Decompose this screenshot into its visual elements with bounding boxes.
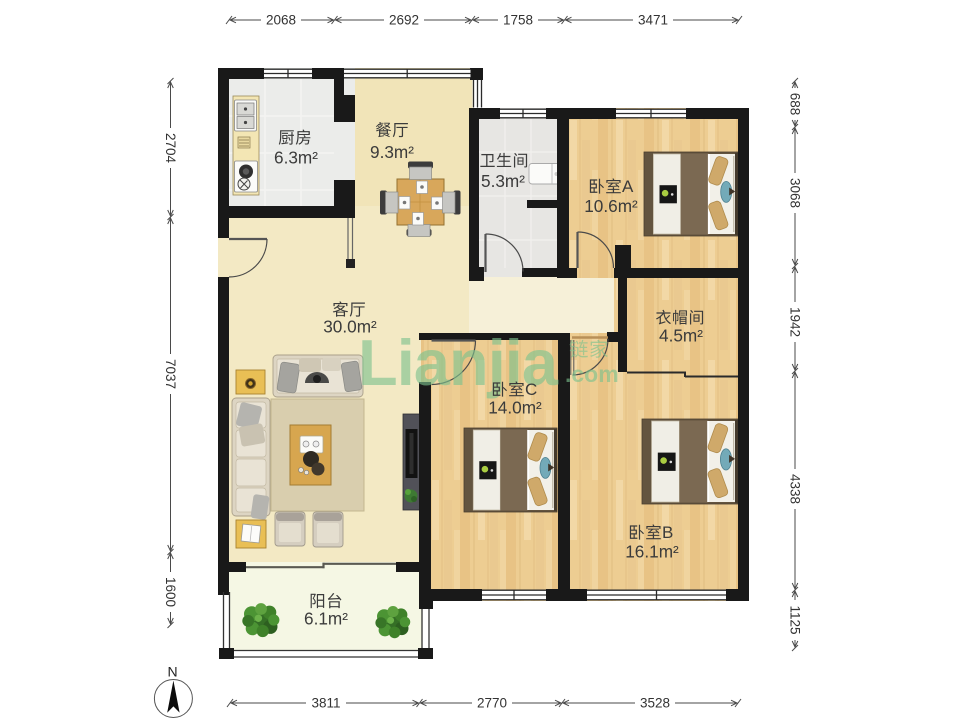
svg-text:N: N — [167, 664, 177, 680]
svg-text:3068: 3068 — [788, 178, 803, 208]
svg-text:2692: 2692 — [389, 13, 419, 28]
svg-text:14.0m²: 14.0m² — [488, 398, 542, 418]
svg-text:2770: 2770 — [477, 696, 507, 711]
svg-text:688: 688 — [788, 93, 803, 116]
svg-text:9.3m²: 9.3m² — [370, 142, 414, 162]
svg-text:3528: 3528 — [640, 696, 670, 711]
svg-text:16.1m²: 16.1m² — [625, 542, 679, 562]
svg-text:B: B — [662, 523, 673, 542]
svg-text:30.0m²: 30.0m² — [323, 317, 377, 337]
svg-text:3471: 3471 — [638, 13, 668, 28]
svg-text:1125: 1125 — [788, 605, 803, 634]
svg-text:1942: 1942 — [788, 307, 803, 337]
svg-text:2704: 2704 — [163, 133, 178, 164]
svg-text:C: C — [525, 380, 537, 399]
svg-text:5.3m²: 5.3m² — [481, 171, 525, 191]
svg-text:6.3m²: 6.3m² — [274, 148, 318, 168]
svg-text:.com: .com — [565, 361, 619, 387]
svg-text:A: A — [622, 177, 634, 196]
svg-text:3811: 3811 — [311, 696, 340, 711]
svg-text:10.6m²: 10.6m² — [584, 196, 638, 216]
svg-text:7037: 7037 — [163, 359, 178, 389]
svg-text:2068: 2068 — [266, 13, 296, 28]
svg-text:1758: 1758 — [503, 13, 533, 28]
svg-text:1600: 1600 — [163, 577, 178, 607]
svg-text:6.1m²: 6.1m² — [304, 609, 348, 629]
svg-text:4.5m²: 4.5m² — [659, 326, 703, 346]
svg-text:4338: 4338 — [788, 474, 803, 504]
